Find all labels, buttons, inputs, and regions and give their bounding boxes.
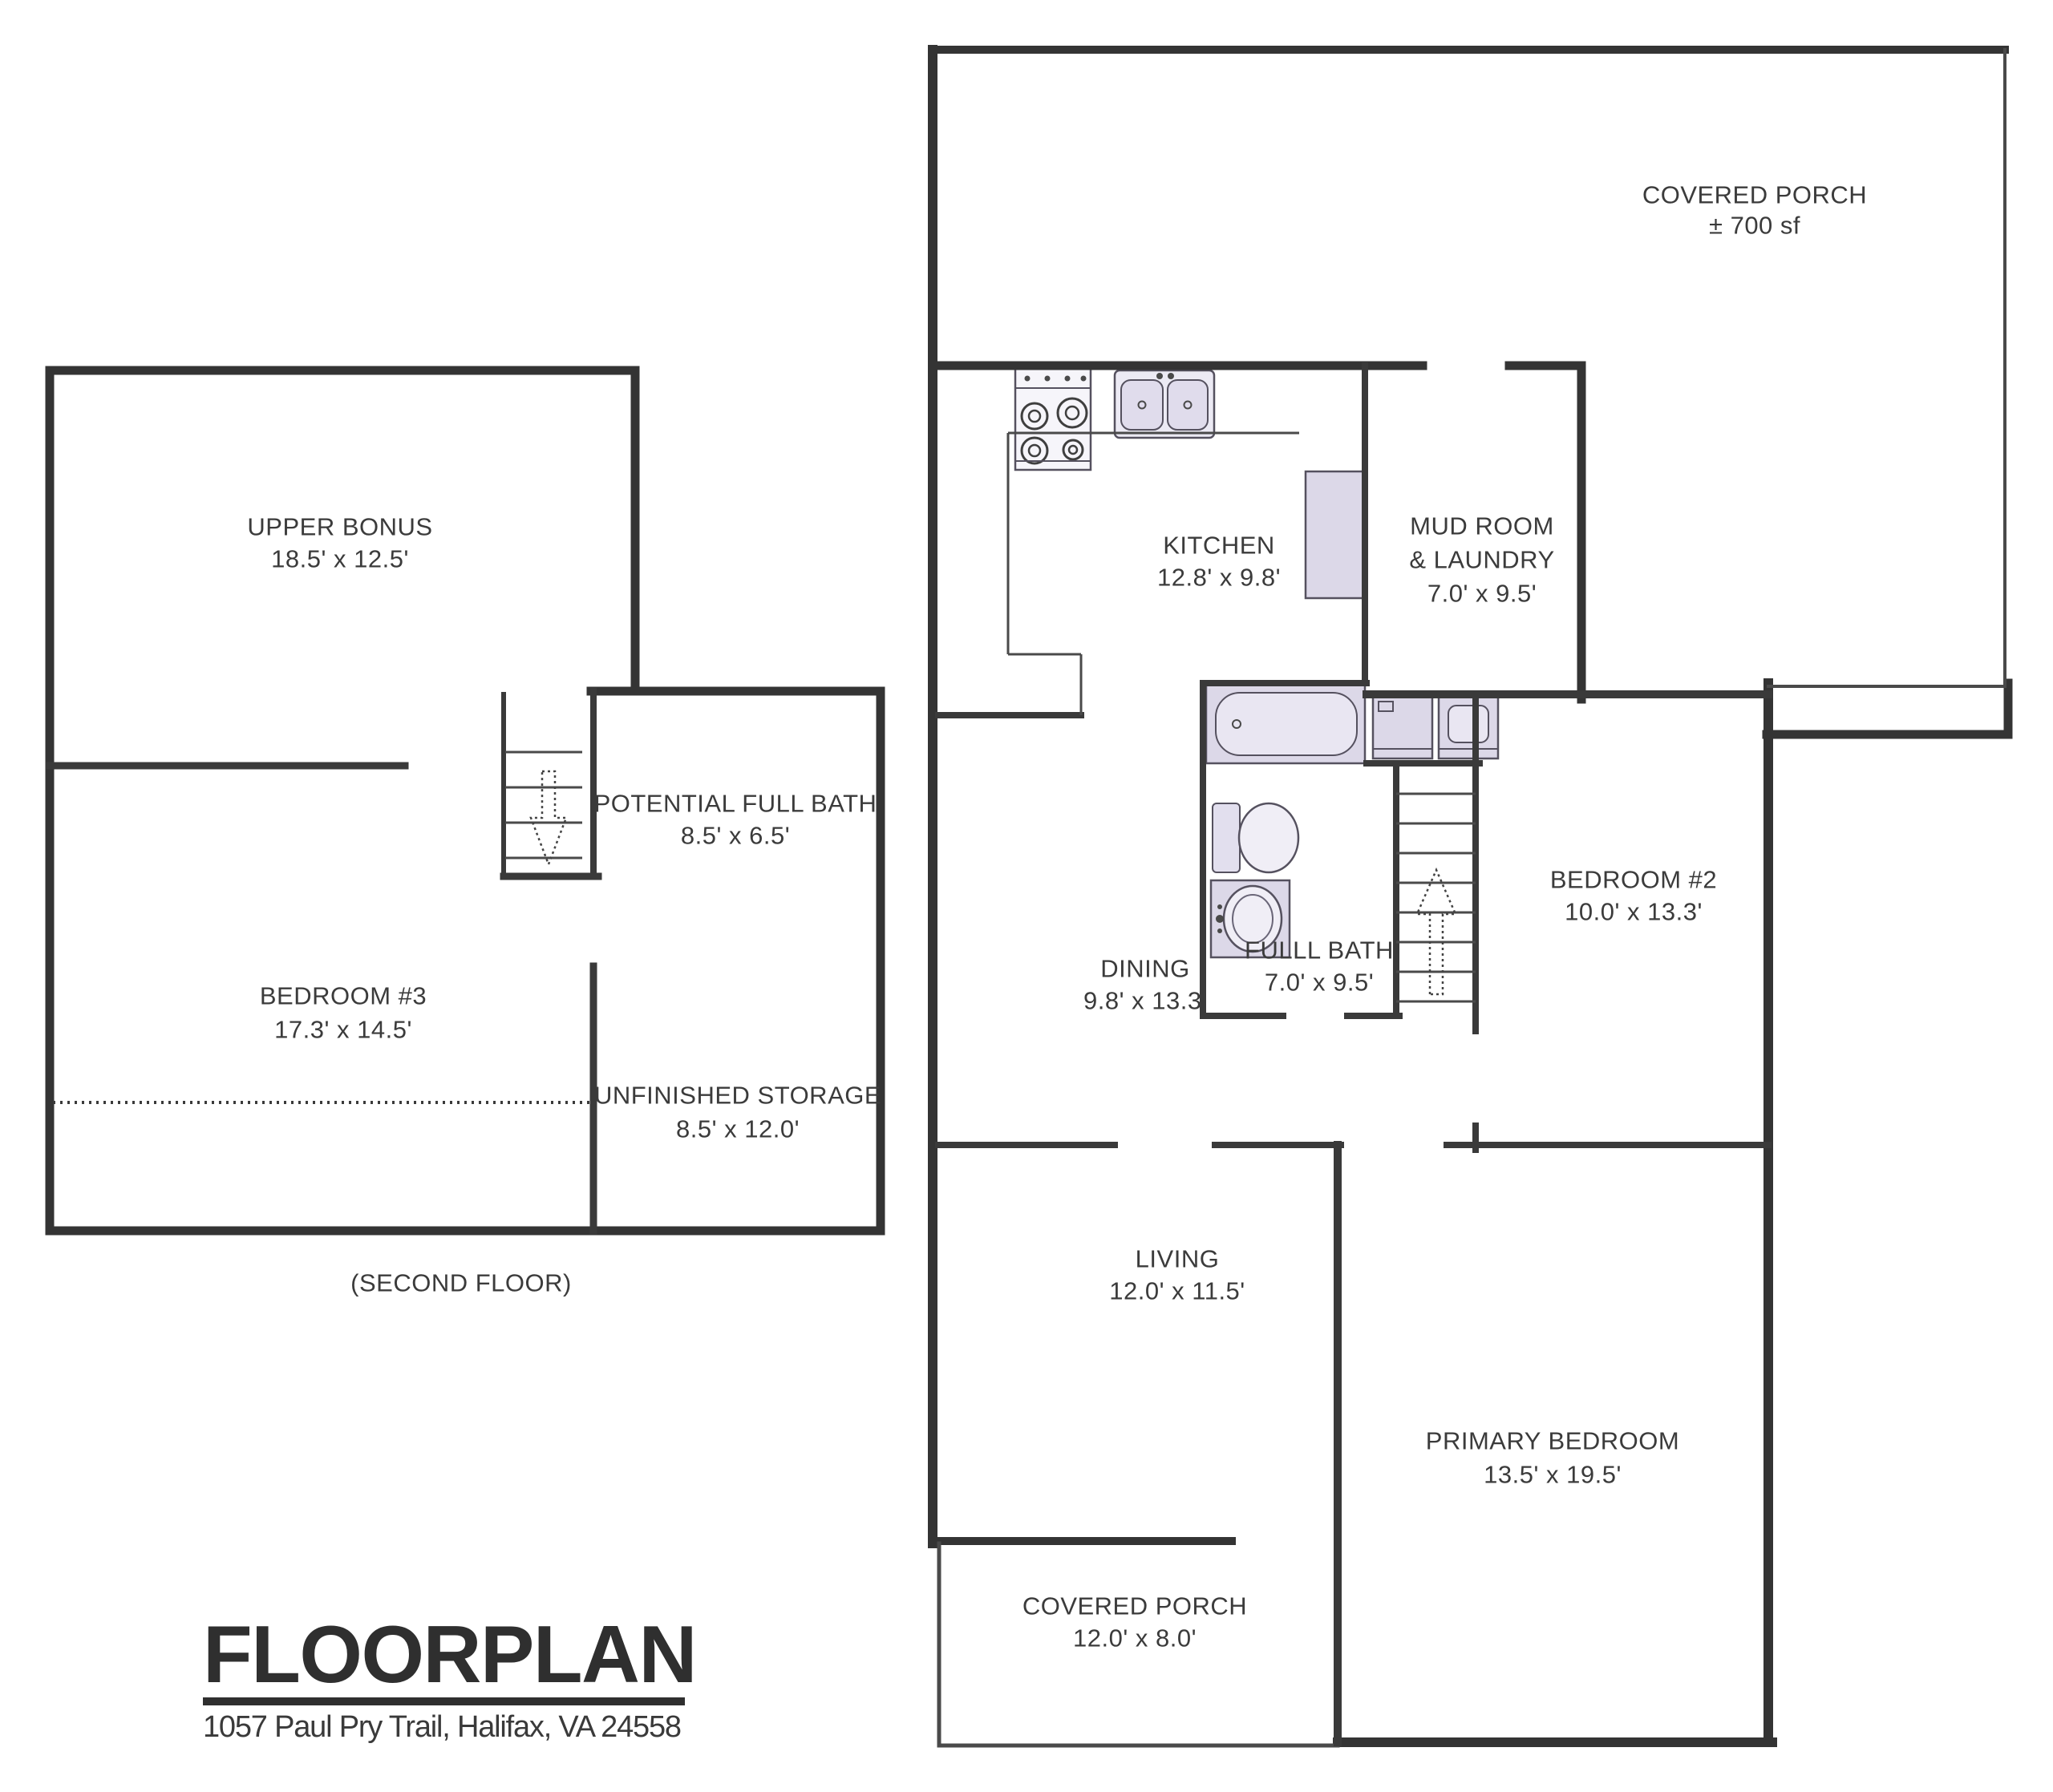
bath-sink-icon-part [1216,915,1224,923]
room-label-full-bath: FULLL BATH [1245,936,1394,965]
bath-sink-icon-part [1217,928,1222,933]
room-label-potential-full-bath: POTENTIAL FULL BATH [594,790,877,818]
room-dims-upper-bonus: 18.5' x 12.5' [271,545,409,573]
floorplan-canvas: UPPER BONUS18.5' x 12.5'POTENTIAL FULL B… [0,0,2053,1792]
stove-icon-part [1065,376,1071,382]
toilet-icon-part [1213,803,1240,872]
stove-icon-part [1081,376,1087,382]
room-label-dining: DINING [1100,955,1190,983]
room-label-primary-bedroom: PRIMARY BEDROOM [1426,1427,1679,1455]
kitchen-sink-icon-part [1121,380,1163,430]
room-label-mud-room-laundry: MUD ROOM [1410,512,1554,540]
canvas-background [0,0,2053,1792]
room-label-kitchen: KITCHEN [1163,532,1275,560]
room-dims-kitchen: 12.8' x 9.8' [1157,564,1281,592]
room-dims-covered-porch-bottom: 12.0' x 8.0' [1073,1624,1197,1652]
room-label-unfinished-storage: UNFINISHED STORAGE [594,1082,881,1110]
room-dims-potential-full-bath: 8.5' x 6.5' [681,822,790,850]
stove-icon [1015,369,1091,470]
toilet-icon [1213,803,1298,872]
room-label-bedroom-2: BEDROOM #2 [1550,866,1717,894]
plan-caption-second-floor: (SECOND FLOOR) [350,1269,572,1297]
title-block: FLOORPLAN 1057 Paul Pry Trail, Halifax, … [203,1615,716,1745]
floorplan-title: FLOORPLAN [203,1615,716,1696]
kitchen-sink-icon-part [1168,380,1208,430]
room-dims-mud-room-laundry: 7.0' x 9.5' [1427,580,1537,608]
room-dims-bedroom-3: 17.3' x 14.5' [274,1016,412,1044]
floorplan-page: { "meta": { "width": 2560, "height": 223… [0,0,2053,1792]
bath-sink-icon-part [1217,904,1222,909]
stove-icon-part [1025,376,1031,382]
bathtub-icon-part [1216,693,1357,755]
room-label-covered-porch-top: COVERED PORCH [1642,181,1867,209]
dryer-icon-part [1448,706,1488,742]
room-dims-covered-porch-top: ± 700 sf [1709,212,1800,240]
kitchen-sink-icon-part [1156,373,1163,379]
dryer-icon [1439,696,1498,758]
kitchen-sink-icon-part [1168,373,1174,379]
room-dims-living: 12.0' x 11.5' [1109,1277,1245,1305]
bathtub-icon [1206,685,1365,763]
room-label-mud-room-laundry: & LAUNDRY [1409,546,1554,574]
room-dims-bedroom-2: 10.0' x 13.3' [1565,898,1703,926]
room-label-living: LIVING [1136,1245,1220,1273]
room-label-covered-porch-bottom: COVERED PORCH [1022,1592,1247,1620]
fridge-icon-part [1306,471,1363,598]
stove-icon-part [1015,369,1091,470]
room-dims-unfinished-storage: 8.5' x 12.0' [676,1115,800,1143]
property-address: 1057 Paul Pry Trail, Halifax, VA 24558 [203,1710,716,1745]
room-dims-full-bath: 7.0' x 9.5' [1265,969,1374,997]
washer-icon [1373,696,1432,758]
room-dims-dining: 9.8' x 13.3' [1083,987,1207,1015]
room-label-bedroom-3: BEDROOM #3 [260,982,427,1010]
stove-icon-part [1045,376,1051,382]
room-label-upper-bonus: UPPER BONUS [247,513,432,541]
kitchen-sink-icon [1115,370,1214,438]
fridge-icon [1306,471,1363,598]
toilet-icon-part [1239,803,1298,872]
room-dims-primary-bedroom: 13.5' x 19.5' [1484,1461,1622,1489]
